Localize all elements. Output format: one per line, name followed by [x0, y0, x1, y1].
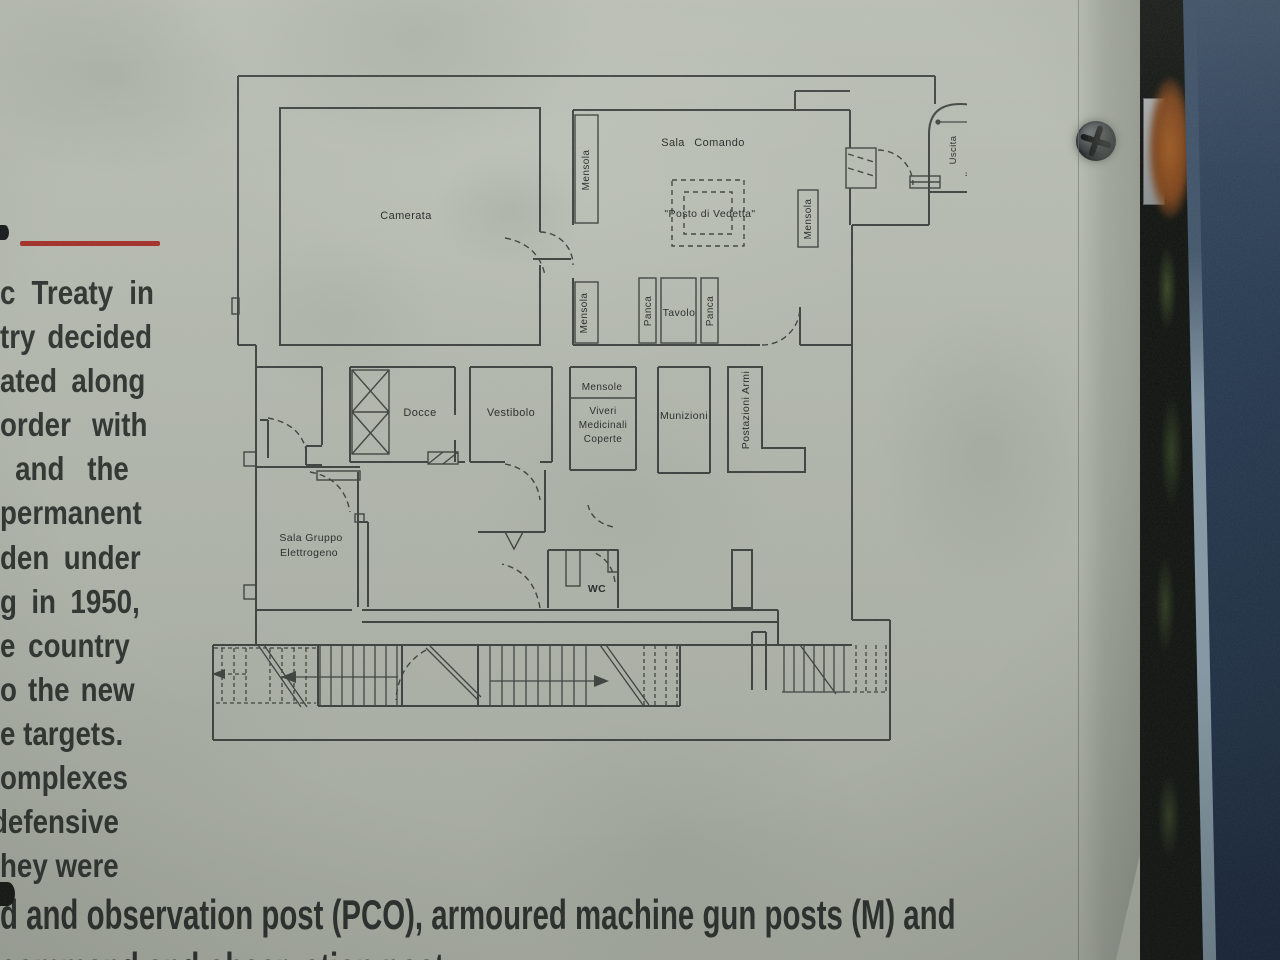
label-uscita-1: Uscita: [948, 135, 959, 164]
label-viveri-1: Viveri: [589, 406, 616, 417]
left-text-line: omplexes: [0, 756, 168, 800]
bottom-caption-line-1: d and observation post (PCO), armoured m…: [0, 891, 956, 939]
label-panca-right: Panca: [705, 296, 716, 326]
exit-span-arrow: [935, 119, 967, 124]
label-mensola-top: Mensola: [581, 150, 592, 191]
stairs-arrow-right: [594, 675, 609, 687]
room-label-sala-gruppo-1: Sala Gruppo: [279, 532, 342, 544]
left-edge-artifact: [0, 882, 15, 906]
label-uscita-2: d'emergenza: [964, 120, 967, 179]
photo-of-information-panel: c Treaty in try decided ated along order…: [0, 0, 1280, 960]
room-label-munizioni: Munizioni: [660, 410, 708, 422]
sign-panel: c Treaty in try decided ated along order…: [0, 0, 1160, 960]
left-text-line: defensive: [0, 800, 167, 844]
room-label-wc: WC: [588, 583, 606, 595]
staircase: [212, 645, 846, 707]
left-text-line: permanent: [0, 491, 168, 535]
label-mensola-bottom: Mensola: [579, 293, 590, 334]
left-text-line: e country: [0, 624, 168, 668]
left-text-line: and the: [0, 447, 168, 491]
left-text-line: order with: [0, 403, 168, 447]
room-label-posto-di-vedetta: "Posto di Vedetta": [664, 208, 755, 220]
red-divider-line: [20, 241, 160, 246]
left-text-line: ated along: [0, 359, 168, 403]
left-text-line: try decided: [0, 315, 168, 359]
label-tavolo: Tavolo: [663, 307, 696, 319]
room-label-sala-comando: Sala Comando: [661, 137, 745, 149]
room-label-docce: Docce: [403, 407, 436, 419]
plan-labels: Camerata Sala Comando "Posto di Vedetta"…: [279, 120, 967, 595]
floor-plan-diagram: Camerata Sala Comando "Posto di Vedetta"…: [205, 64, 967, 758]
wc-fixture: [608, 550, 618, 572]
left-text-line: g in 1950,: [0, 580, 168, 624]
label-viveri-2: Medicinali: [579, 420, 627, 431]
label-viveri-3: Coperte: [584, 434, 622, 445]
left-text-line: o the new: [0, 668, 168, 712]
label-postazioni-armi: Postazioni Armi: [740, 371, 752, 449]
label-panca-left: Panca: [643, 296, 654, 326]
left-text-line: e targets.: [0, 712, 168, 756]
label-mensole: Mensole: [582, 382, 623, 393]
label-mensola-right: Mensola: [803, 199, 814, 240]
room-label-vestibolo: Vestibolo: [487, 407, 535, 419]
wc-fixture: [566, 550, 580, 586]
left-text-line: hey were: [0, 844, 168, 888]
room-label-camerata: Camerata: [380, 210, 432, 222]
bottom-caption-line-2: command and observation post: [0, 944, 444, 960]
left-edge-artifact: [0, 225, 9, 240]
left-text-line: den under: [0, 536, 168, 580]
left-text-line: c Treaty in: [0, 271, 168, 315]
room-label-sala-gruppo-2: Elettrogeno: [280, 547, 338, 559]
left-text-column: c Treaty in try decided ated along order…: [0, 271, 200, 888]
staircase-dashed: [214, 645, 888, 705]
